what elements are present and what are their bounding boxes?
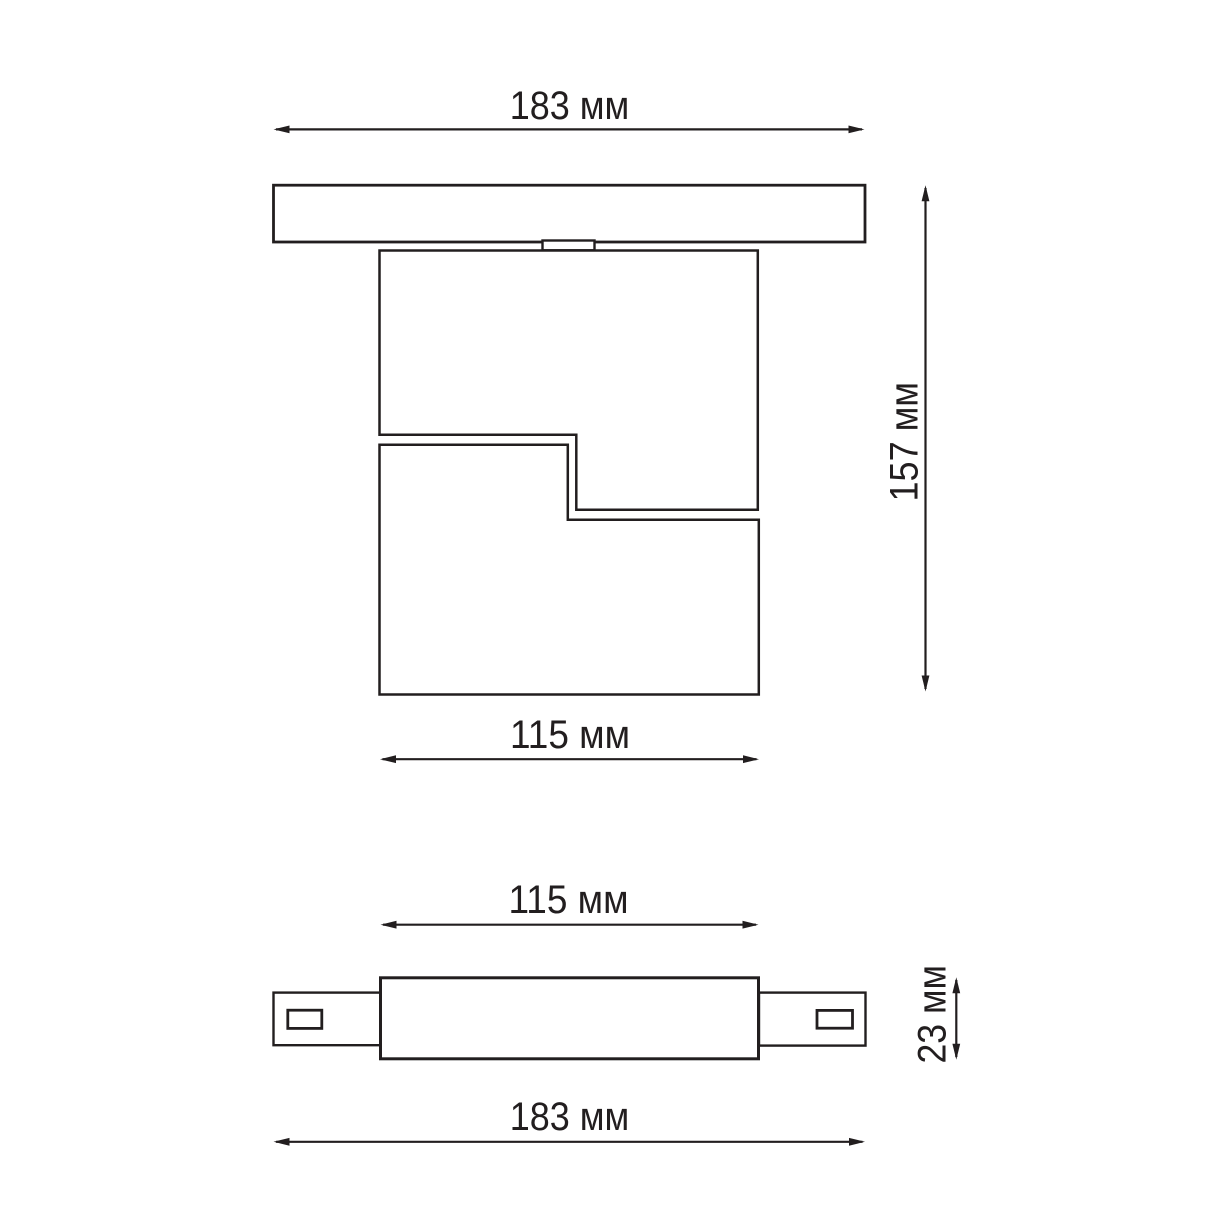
svg-text:157 мм: 157 мм bbox=[883, 382, 927, 502]
svg-text:115 мм: 115 мм bbox=[510, 713, 630, 757]
svg-text:23 мм: 23 мм bbox=[911, 965, 955, 1064]
svg-text:183 мм: 183 мм bbox=[510, 1095, 630, 1139]
svg-text:115 мм: 115 мм bbox=[509, 878, 629, 922]
svg-text:183 мм: 183 мм bbox=[510, 84, 630, 128]
